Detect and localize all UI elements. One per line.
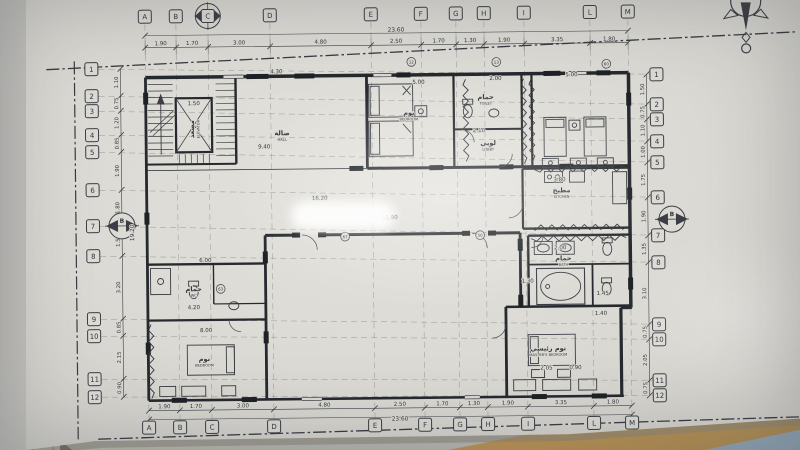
photographed-floor-plan: 1.901.703.004.802.501.701.301.903.351.80… xyxy=(0,0,800,450)
photo-vignette xyxy=(0,0,800,450)
